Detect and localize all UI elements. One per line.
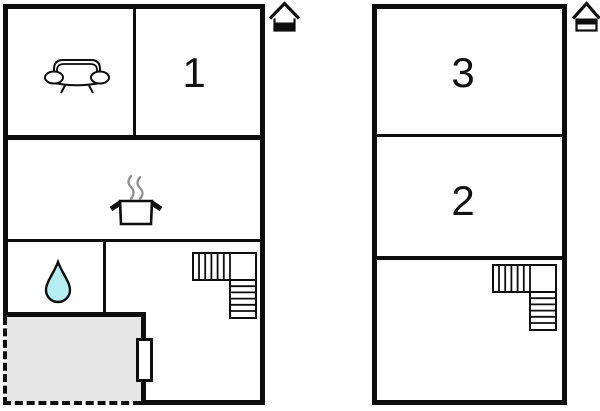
upper-floor-icon	[572, 1, 600, 32]
terrace-area	[3, 317, 141, 405]
floorplan-canvas: 1	[0, 0, 600, 411]
room-divider	[133, 4, 136, 137]
terrace-door	[136, 338, 153, 382]
staircase	[192, 252, 258, 319]
staircase	[492, 264, 558, 331]
ground-floor-icon	[268, 1, 301, 32]
water-drop-icon	[43, 259, 73, 305]
wall	[372, 4, 567, 9]
wall	[260, 4, 265, 405]
sofa-icon	[44, 56, 110, 94]
cooking-pot-icon	[106, 172, 166, 228]
room-divider	[3, 239, 265, 242]
wall	[372, 400, 567, 405]
wall	[3, 4, 8, 317]
room-divider	[3, 135, 265, 140]
room-label-1: 1	[182, 52, 205, 94]
room-label-3: 3	[451, 52, 474, 94]
wall	[141, 400, 265, 405]
room-divider	[372, 134, 567, 137]
wall	[562, 4, 567, 405]
room-label-2: 2	[451, 180, 474, 222]
wall	[372, 4, 377, 405]
room-divider	[372, 256, 567, 260]
room-divider	[103, 239, 106, 317]
